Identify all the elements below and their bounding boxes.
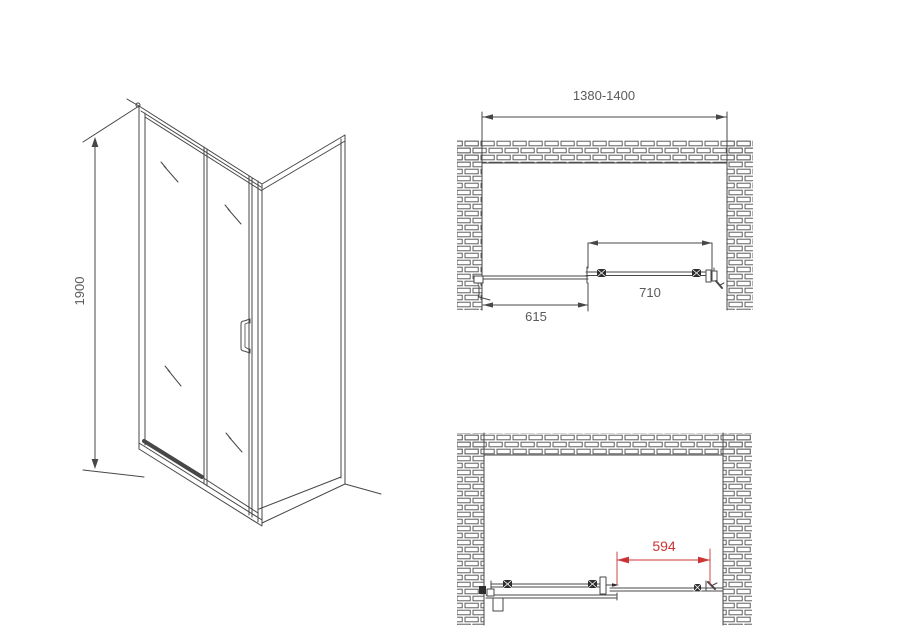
roller-icon: [597, 269, 606, 277]
brick-walls: [457, 433, 752, 625]
handle-top-view: [493, 598, 503, 611]
arrow-right-icon: [716, 114, 726, 120]
wall-bracket-left: [474, 276, 483, 283]
arrow-left-icon: [483, 302, 493, 307]
arrow-left-icon: [588, 240, 598, 245]
brick-wall-left: [457, 433, 484, 625]
top-rail-outer: [139, 106, 262, 184]
arrow-down-icon: [92, 459, 99, 469]
bottom-track-dark: [144, 441, 202, 477]
reflection-mark: [226, 433, 231, 439]
bottom-track-thin: [202, 477, 258, 513]
glass-reflection-marks: [161, 162, 242, 452]
wall-profile-left: [479, 586, 486, 594]
diagram-canvas: 1900: [0, 0, 900, 636]
door-track-open: [479, 577, 723, 611]
arrow-left-icon: [483, 114, 493, 120]
pointer-arrow-icon: [612, 583, 619, 587]
side-panel: [259, 135, 381, 523]
overall-width-dimension: 1380-1400: [482, 88, 727, 120]
wall-bracket-left: [487, 589, 494, 596]
fixed-panel-dimension: 615: [483, 283, 588, 324]
top-rail-stub: [127, 99, 139, 106]
side-panel-top-outer: [262, 135, 345, 184]
roller-icon: [503, 580, 512, 588]
roller-icon: [588, 580, 597, 588]
arrow-left-icon: [617, 557, 629, 564]
side-panel-top-inner: [262, 141, 345, 190]
door-width-label: 710: [639, 285, 661, 300]
hook-right-tick: [713, 583, 717, 585]
brick-wall-right: [727, 140, 753, 310]
height-dimension-label: 1900: [72, 277, 87, 306]
reflection-mark: [225, 205, 230, 211]
bottom-rail-top: [139, 443, 262, 520]
opening-width-dimension: 594: [617, 538, 710, 585]
roller-icon: [694, 584, 701, 591]
brick-walls: [457, 140, 753, 310]
opening-width-label: 594: [652, 538, 676, 554]
arrow-right-icon: [698, 557, 710, 564]
door-frame: [127, 99, 262, 526]
top-rail-mid: [141, 111, 261, 187]
plan-view-open: 594: [457, 433, 752, 625]
hook-right-tick: [720, 283, 724, 285]
brick-wall-top: [457, 140, 753, 163]
arrow-right-icon: [578, 302, 588, 307]
plan-view-closed: 1380-1400: [457, 88, 753, 324]
brick-wall-top: [457, 433, 752, 455]
brick-wall-right: [723, 433, 752, 625]
arrow-up-icon: [92, 137, 99, 147]
reflection-mark: [161, 162, 166, 168]
floor-line-right: [345, 484, 381, 494]
dim-extension-bottom: [83, 470, 144, 477]
door-edge-profile: [600, 577, 606, 594]
arrow-right-icon: [702, 240, 712, 245]
overall-width-label: 1380-1400: [573, 88, 635, 103]
bottom-rail-bottom: [139, 449, 262, 526]
wall-profile-right-1: [706, 270, 711, 282]
height-dimension: 1900: [72, 106, 144, 477]
roller-icon: [692, 269, 701, 277]
door-track-closed: [474, 267, 724, 300]
side-panel-bottom-inner: [259, 477, 341, 509]
reflection-mark: [165, 366, 170, 372]
brick-wall-left: [457, 140, 482, 310]
side-elevation-view: 1900: [72, 99, 381, 526]
fixed-panel-width-label: 615: [525, 309, 547, 324]
dim-extension-top: [83, 106, 139, 142]
wall-profile-right-2: [712, 271, 717, 281]
shower-diagram: 1900: [0, 0, 900, 636]
